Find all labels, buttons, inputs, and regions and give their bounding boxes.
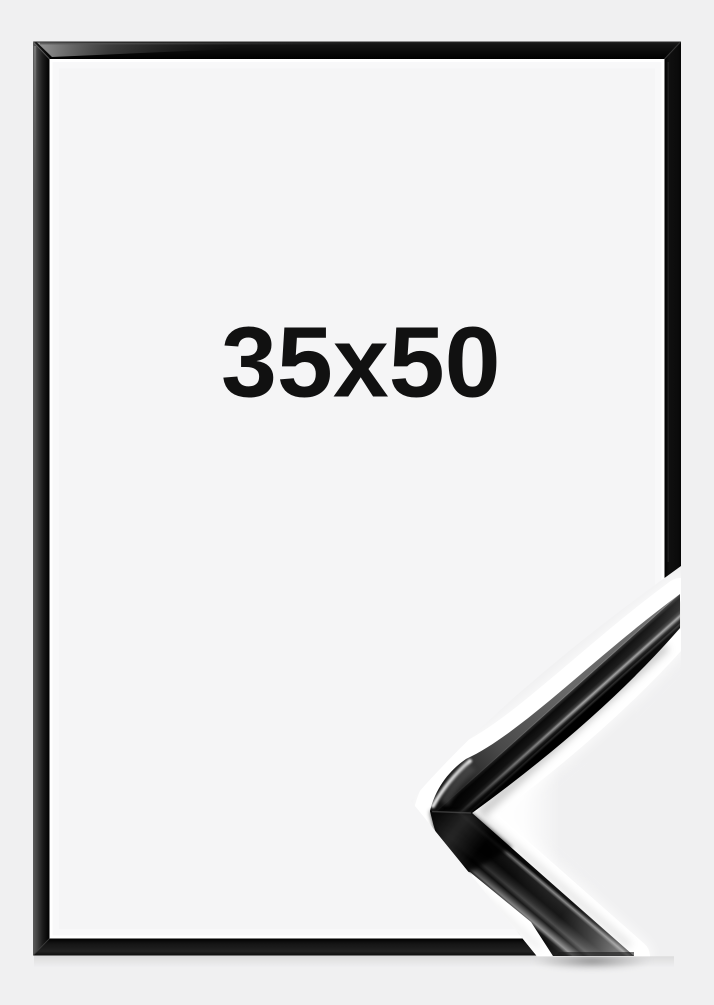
svg-text:35x50: 35x50 [221, 307, 500, 419]
